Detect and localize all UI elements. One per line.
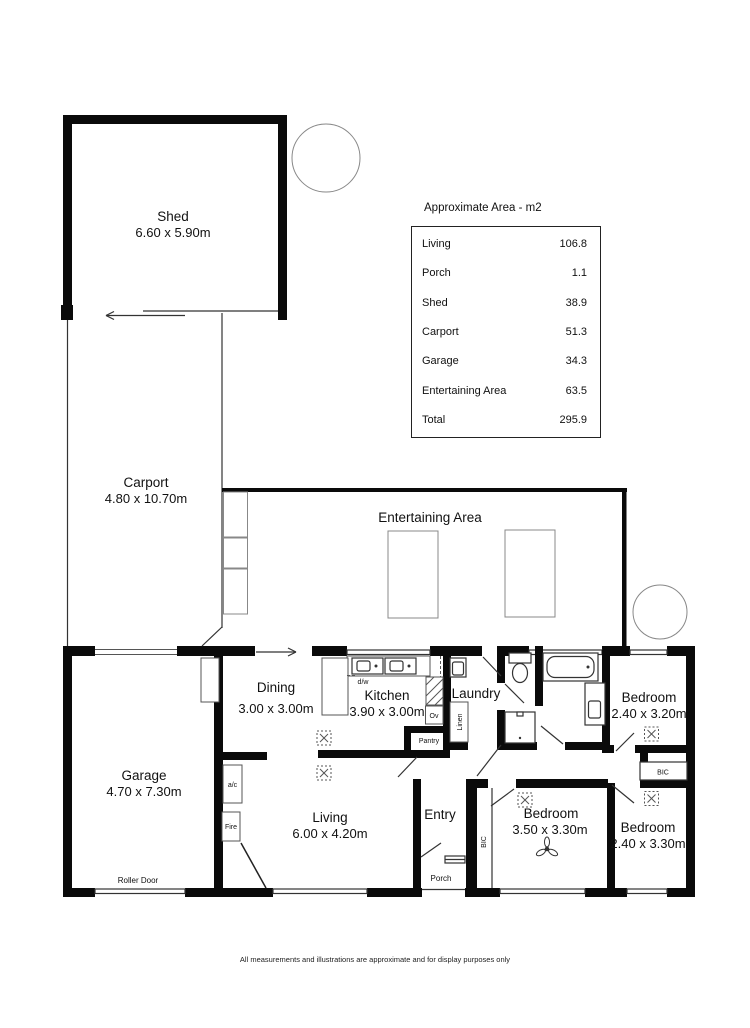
row-label: Shed [422,297,448,309]
aircon-label: a/c [228,782,238,789]
bedroom-mid-dims: 3.50 x 3.30m [512,822,587,837]
row-value: 295.9 [559,414,587,426]
shower-icon [505,712,535,743]
table-row: Porch1.1 [422,267,587,279]
entry-label: Entry [424,807,456,822]
porch-label: Porch [431,874,452,883]
row-label: Garage [422,355,459,367]
fireplace-corner-wall [241,843,266,888]
bedroom-top-label: Bedroom [622,690,677,705]
row-label: Total [422,414,445,426]
pantry-cupboard-icon [426,677,443,705]
row-label: Living [422,238,451,250]
bedroom-right-label: Bedroom [621,820,676,835]
living-label: Living [312,810,347,825]
row-value: 106.8 [559,238,587,250]
row-value: 63.5 [566,385,587,397]
row-value: 38.9 [566,297,587,309]
disclaimer-text: All measurements and illustrations are a… [0,955,750,964]
table-row: Garage34.3 [422,355,587,367]
tree-icon [292,124,360,192]
garage-label: Garage [121,768,166,783]
living-dims: 6.00 x 4.20m [292,826,367,841]
row-value: 1.1 [572,267,587,279]
carport-label: Carport [123,475,168,490]
laundry-trough-icon [450,658,466,677]
table-row: Entertaining Area63.5 [422,385,587,397]
dining-dims: 3.00 x 3.00m [238,701,313,716]
bic-label: BIC [481,836,488,848]
table-row: Total295.9 [422,414,587,426]
porch-sidelight-icon [445,856,465,863]
bedroom-top-dims: 2.40 x 3.20m [611,706,686,721]
row-label: Porch [422,267,451,279]
row-label: Entertaining Area [422,385,506,397]
oven-label: Ov [430,713,439,720]
ceiling-fan-icon [535,837,558,857]
kitchen-label: Kitchen [364,688,409,703]
dining-label: Dining [257,680,295,695]
bic-label: BIC [657,770,669,777]
area-table-title: Approximate Area - m2 [424,202,542,214]
floor-plan-page: Shed 6.60 x 5.90m Carport 4.80 x 10.70m … [0,0,750,1028]
kitchen-bench-icon [322,658,348,715]
shed-label: Shed [157,209,189,224]
shed-dims: 6.60 x 5.90m [135,225,210,240]
row-value: 51.3 [566,326,587,338]
pantry-label: Pantry [419,738,440,745]
table-row: Shed38.9 [422,297,587,309]
row-label: Carport [422,326,459,338]
bedroom-mid-label: Bedroom [524,806,579,821]
window-icon [95,648,667,894]
table-row: Living106.8 [422,238,587,250]
kitchen-dims: 3.90 x 3.00m [349,704,424,719]
row-value: 34.3 [566,355,587,367]
floor-plan-svg: Shed 6.60 x 5.90m Carport 4.80 x 10.70m … [0,0,750,1028]
outdoor-table-icon [388,531,438,618]
area-table: Living106.8 Porch1.1 Shed38.9 Carport51.… [411,226,601,438]
bedroom-right-dims: 2.40 x 3.30m [610,836,685,851]
toilet-icon [509,653,531,683]
laundry-label: Laundry [452,686,501,701]
table-row: Carport51.3 [422,326,587,338]
entertaining-area-label: Entertaining Area [378,510,482,525]
garage-door-leaf-icon [201,658,219,702]
dishwasher-label: d/w [358,679,370,686]
roller-door-label: Roller Door [118,876,159,885]
outdoor-table-icon [505,530,555,617]
garage-dims: 4.70 x 7.30m [106,784,181,799]
tree-icon [633,585,687,639]
linen-label: Linen [457,713,464,730]
kitchen-sink-icon [347,656,430,676]
carport-dims: 4.80 x 10.70m [105,491,187,506]
bathtub-icon [543,653,598,681]
fireplace-label: Fire [225,824,237,831]
vanity-icon [585,683,605,725]
